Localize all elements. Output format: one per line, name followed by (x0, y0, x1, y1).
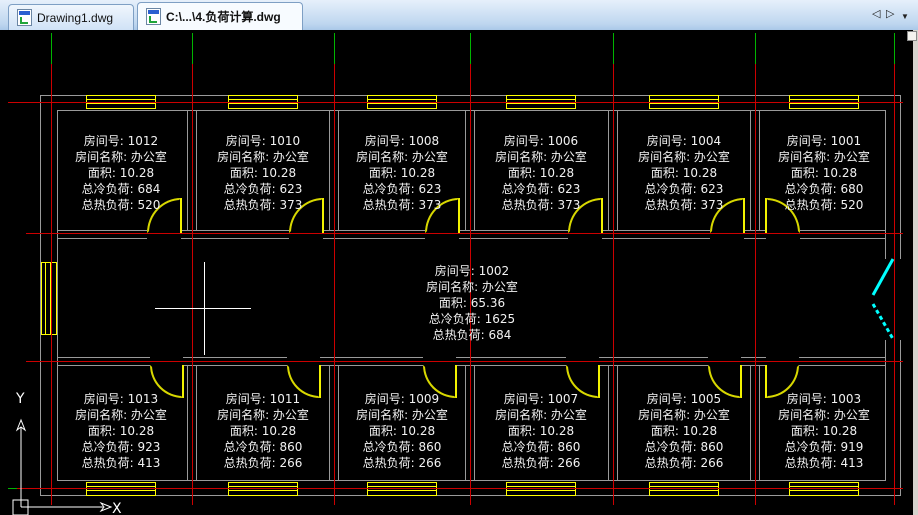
room-label-1002: 房间号: 1002房间名称: 办公室面积: 65.36总冷负荷: 1625总热负… (397, 263, 547, 343)
document-tab-bar: Drawing1.dwg C:\...\4.负荷计算.dwg ◁ ▷ ▼ (0, 0, 918, 31)
drawing-canvas[interactable]: 房间号: 1012房间名称: 办公室面积: 10.28总冷负荷: 684总热负荷… (0, 30, 918, 515)
window-symbol (41, 262, 57, 335)
dwg-file-icon (146, 8, 161, 25)
entrance-double-door (865, 252, 905, 347)
tab-scroll-right-icon[interactable]: ▷ (886, 5, 894, 23)
window-symbol (789, 482, 859, 496)
room-label-1011: 房间号: 1011房间名称: 办公室面积: 10.28总冷负荷: 860总热负荷… (188, 391, 338, 471)
room-label-1012: 房间号: 1012房间名称: 办公室面积: 10.28总冷负荷: 684总热负荷… (46, 133, 196, 213)
scrollbar-top-button[interactable] (907, 31, 917, 41)
ucs-y-label: Y (15, 391, 25, 407)
dwg-file-icon (17, 9, 32, 26)
room-label-1008: 房间号: 1008房间名称: 办公室面积: 10.28总冷负荷: 623总热负荷… (327, 133, 477, 213)
room-label-1001: 房间号: 1001房间名称: 办公室面积: 10.28总冷负荷: 680总热负荷… (749, 133, 899, 213)
crosshair-cursor (155, 308, 251, 309)
grid-axis-horizontal (8, 102, 903, 103)
room-label-1003: 房间号: 1003房间名称: 办公室面积: 10.28总冷负荷: 919总热负荷… (749, 391, 899, 471)
ucs-x-label: X (112, 501, 122, 515)
room-label-1009: 房间号: 1009房间名称: 办公室面积: 10.28总冷负荷: 860总热负荷… (327, 391, 477, 471)
tab-load-calculation[interactable]: C:\...\4.负荷计算.dwg (137, 2, 303, 30)
window-symbol (506, 482, 576, 496)
crosshair-cursor (204, 262, 205, 355)
cad-application-window: Drawing1.dwg C:\...\4.负荷计算.dwg ◁ ▷ ▼ (0, 0, 918, 515)
tab-list-dropdown-icon[interactable]: ▼ (901, 8, 909, 26)
right-border-strip (913, 30, 918, 515)
room-label-1005: 房间号: 1005房间名称: 办公室面积: 10.28总冷负荷: 860总热负荷… (609, 391, 759, 471)
tab-scroll-left-icon[interactable]: ◁ (872, 5, 880, 23)
grid-axis-horizontal (26, 361, 903, 362)
tab-label: Drawing1.dwg (37, 11, 113, 25)
room-label-1007: 房间号: 1007房间名称: 办公室面积: 10.28总冷负荷: 860总热负荷… (466, 391, 616, 471)
ucs-icon: Y X (8, 385, 128, 515)
room-label-1006: 房间号: 1006房间名称: 办公室面积: 10.28总冷负荷: 623总热负荷… (466, 133, 616, 213)
tab-drawing1[interactable]: Drawing1.dwg (8, 4, 134, 30)
window-symbol (367, 482, 437, 496)
tab-label: C:\...\4.负荷计算.dwg (166, 8, 281, 25)
room-label-1004: 房间号: 1004房间名称: 办公室面积: 10.28总冷负荷: 623总热负荷… (609, 133, 759, 213)
room-label-1010: 房间号: 1010房间名称: 办公室面积: 10.28总冷负荷: 623总热负荷… (188, 133, 338, 213)
window-symbol (228, 482, 298, 496)
window-symbol (649, 482, 719, 496)
grid-axis-horizontal (26, 233, 903, 234)
grid-axis-horizontal (8, 488, 903, 489)
